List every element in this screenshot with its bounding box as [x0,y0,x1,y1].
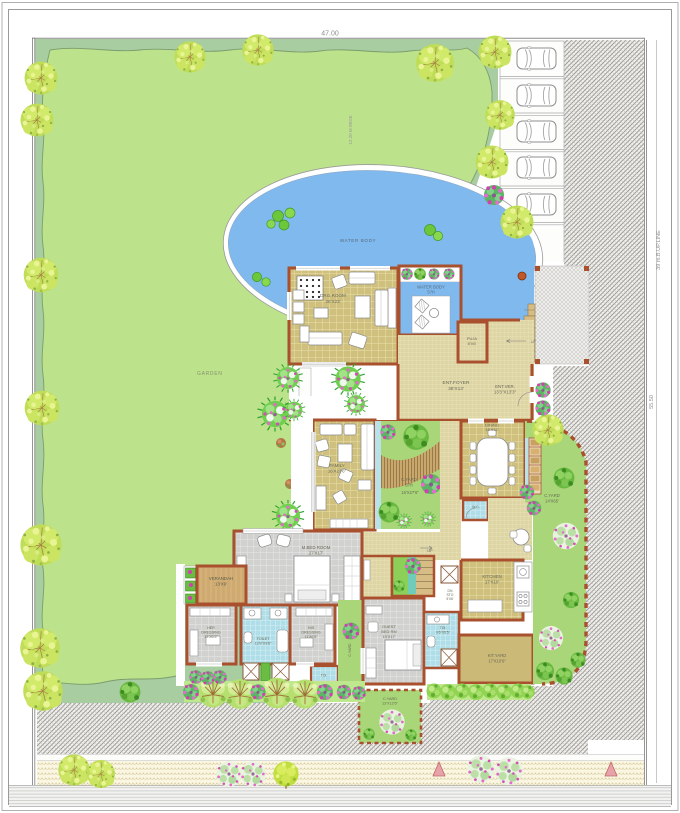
svg-text:15'X27'6": 15'X27'6" [401,490,419,495]
svg-text:5'/H: 5'/H [427,290,434,295]
svg-text:TOI.: TOI. [321,674,328,678]
svg-text:VERANDAH: VERANDAH [209,576,233,581]
svg-text:16'X27'6": 16'X27'6" [328,469,347,474]
svg-text:13'X9': 13'X9' [215,582,227,587]
svg-text:DRESSING: DRESSING [201,631,220,635]
svg-text:38'X13': 38'X13' [448,386,464,392]
svg-text:DRESSING: DRESSING [301,631,320,635]
svg-text:12.20 M WIDE: 12.20 M WIDE [348,115,353,144]
svg-text:13'X6'5": 13'X6'5" [204,635,218,639]
svg-text:12'9"X9'6": 12'9"X9'6" [255,642,272,646]
svg-text:47.00: 47.00 [321,31,339,38]
svg-text:UP: UP [427,549,433,553]
svg-text:C.YARD: C.YARD [348,643,352,657]
svg-text:39 m.B.UP.LINE: 39 m.B.UP.LINE [656,230,662,270]
svg-text:13'X12'6": 13'X12'6" [382,702,399,706]
svg-text:5'/H: 5'/H [405,483,412,488]
svg-text:11'X6'5": 11'X6'5" [304,635,318,639]
svg-text:M.BED ROOM: M.BED ROOM [302,545,331,550]
svg-text:55.50: 55.50 [649,395,655,409]
svg-text:TOI.: TOI. [440,626,447,630]
svg-text:17'X10'6": 17'X10'6" [488,659,506,664]
svg-text:KIT.YARD: KIT.YARD [488,653,507,658]
svg-text:C.YARD: C.YARD [544,493,560,498]
svg-text:C.YARD: C.YARD [401,477,417,482]
svg-text:W.C.: W.C. [472,505,480,509]
svg-text:UP: UP [531,340,536,344]
svg-text:5'X6': 5'X6' [446,597,454,601]
svg-text:27'X17': 27'X17' [309,551,324,556]
svg-text:17'X10': 17'X10' [485,580,500,585]
svg-text:GARDEN: GARDEN [197,371,223,377]
svg-text:WATER BODY: WATER BODY [340,238,376,243]
svg-text:9'6"X5'5": 9'6"X5'5" [436,631,451,635]
svg-text:DRG.ROOM: DRG.ROOM [320,293,346,298]
svg-text:16'X12': 16'X12' [485,427,498,432]
svg-text:ENT.FOYER: ENT.FOYER [443,380,470,386]
svg-text:FAMILY: FAMILY [329,463,344,468]
svg-text:KITCHEN: KITCHEN [482,574,501,579]
svg-text:HER: HER [207,626,215,630]
svg-text:TOILET: TOILET [257,637,271,641]
svg-text:13'3"X13'3": 13'3"X13'3" [494,390,517,395]
svg-text:8'X6': 8'X6' [468,341,477,346]
svg-text:15'X17': 15'X17' [382,634,395,639]
svg-text:14'X65': 14'X65' [545,499,559,504]
svg-text:26'X23': 26'X23' [325,299,340,304]
svg-text:HIS: HIS [308,626,315,630]
svg-text:ENT.VER.: ENT.VER. [495,384,515,389]
svg-text:C.YARD: C.YARD [383,697,397,701]
